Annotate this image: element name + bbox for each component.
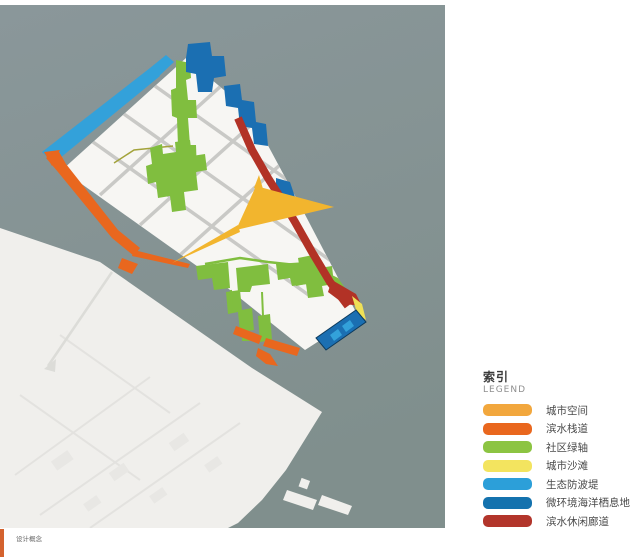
footer-caption: 设计概念	[16, 533, 42, 543]
legend-swatch	[483, 497, 532, 509]
legend-swatch	[483, 460, 532, 472]
legend-swatch	[483, 423, 532, 435]
legend-panel: 索引 LEGEND 城市空间滨水栈道社区绿轴城市沙滩生态防波堤微环境海洋栖息地滨…	[445, 0, 640, 557]
map-canvas	[0, 5, 445, 528]
page: 索引 LEGEND 城市空间滨水栈道社区绿轴城市沙滩生态防波堤微环境海洋栖息地滨…	[0, 0, 640, 557]
legend-item: 滨水栈道	[483, 423, 630, 436]
legend-item: 城市空间	[483, 404, 630, 417]
legend-item: 微环境海洋栖息地	[483, 497, 630, 510]
legend-item-label: 城市空间	[546, 403, 588, 418]
legend-item: 滨水休闲廊道	[483, 515, 630, 528]
footer-accent-bar	[0, 529, 4, 557]
legend-item-label: 社区绿轴	[546, 440, 588, 455]
legend-item: 社区绿轴	[483, 441, 630, 454]
legend-swatch	[483, 441, 532, 453]
legend-rows: 城市空间滨水栈道社区绿轴城市沙滩生态防波堤微环境海洋栖息地滨水休闲廊道	[483, 404, 630, 528]
legend-item-label: 滨水休闲廊道	[546, 514, 609, 529]
legend-item: 生态防波堤	[483, 478, 630, 491]
legend-item: 城市沙滩	[483, 460, 630, 473]
legend-item-label: 生态防波堤	[546, 477, 599, 492]
legend-subtitle: LEGEND	[483, 385, 526, 395]
legend-swatch	[483, 478, 532, 490]
legend-swatch	[483, 404, 532, 416]
legend-item-label: 微环境海洋栖息地	[546, 495, 630, 510]
legend-item-label: 城市沙滩	[546, 458, 588, 473]
masterplan-map	[0, 5, 445, 528]
legend-swatch	[483, 515, 532, 527]
legend-title: 索引	[483, 368, 509, 385]
legend-item-label: 滨水栈道	[546, 421, 588, 436]
